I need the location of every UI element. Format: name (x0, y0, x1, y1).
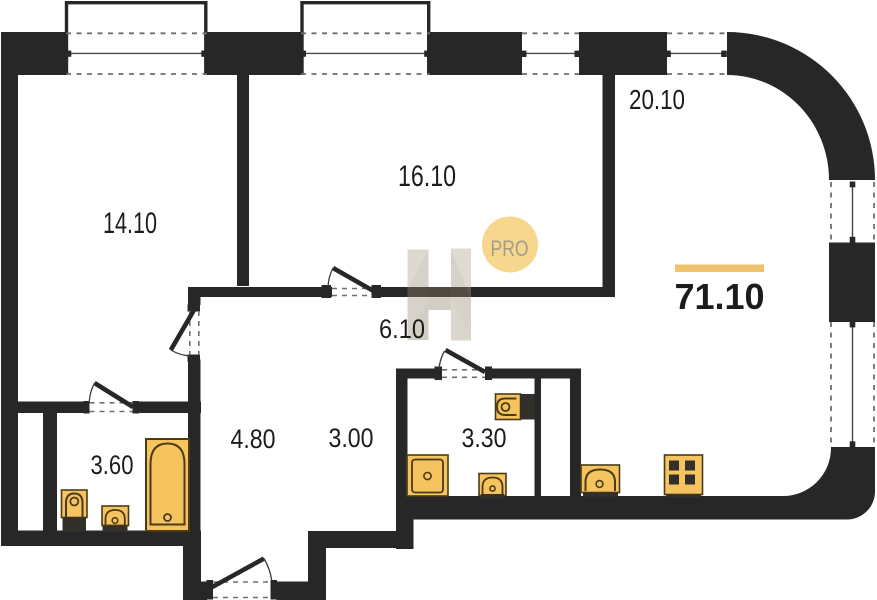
svg-text:3.60: 3.60 (91, 450, 134, 480)
svg-text:3.30: 3.30 (462, 423, 507, 453)
svg-text:3.00: 3.00 (329, 423, 374, 453)
svg-text:14.10: 14.10 (103, 207, 157, 240)
svg-text:16.10: 16.10 (398, 160, 456, 193)
svg-text:71.10: 71.10 (674, 276, 764, 317)
svg-text:4.80: 4.80 (231, 424, 276, 454)
svg-text:20.10: 20.10 (629, 84, 685, 115)
svg-text:6.10: 6.10 (379, 314, 425, 344)
svg-text:PRO: PRO (491, 236, 529, 261)
